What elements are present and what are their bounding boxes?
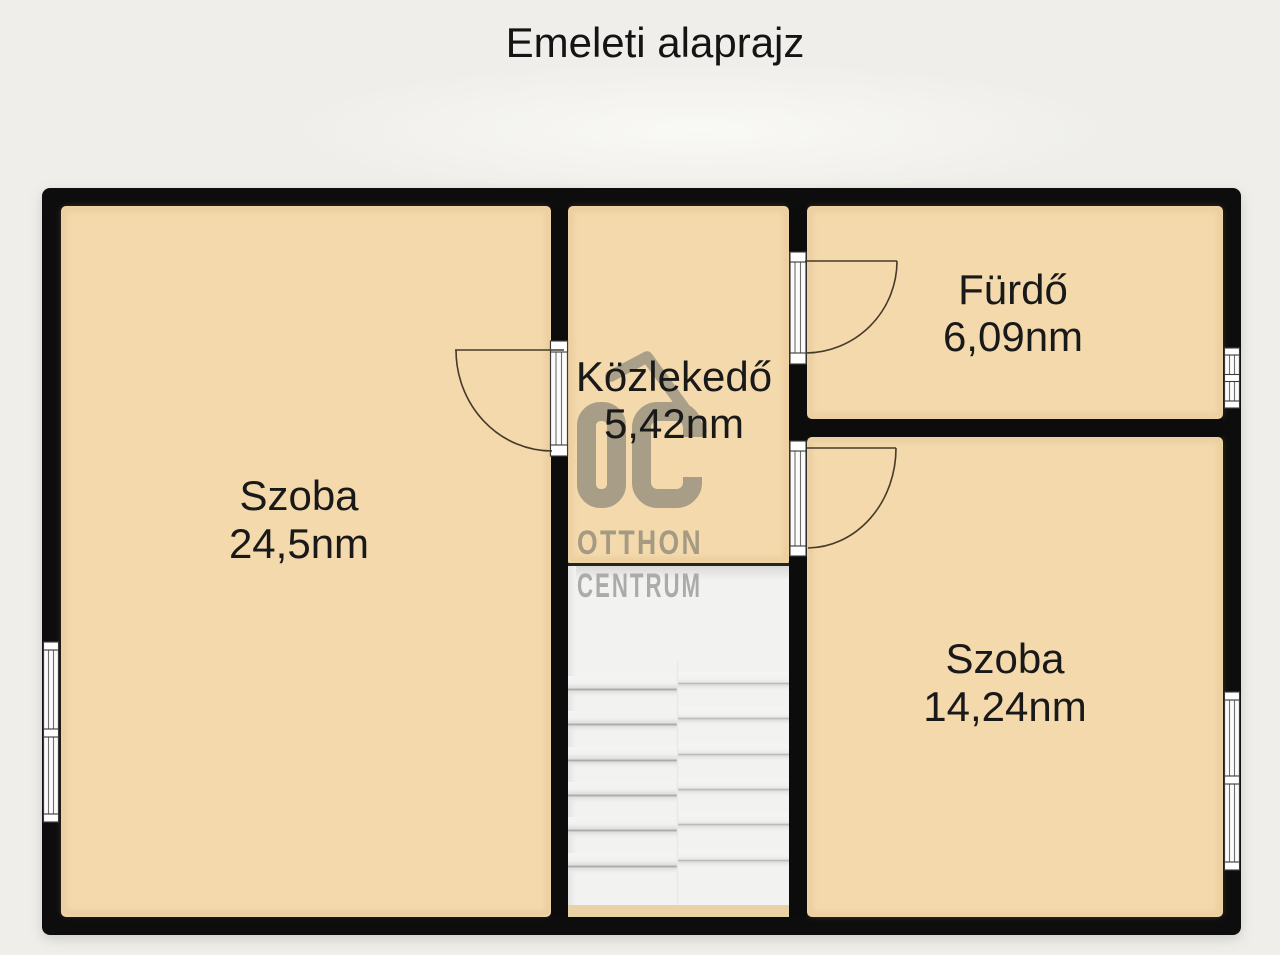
svg-text:6,09nm: 6,09nm [943, 313, 1083, 360]
svg-text:Szoba: Szoba [945, 635, 1065, 682]
svg-text:Fürdő: Fürdő [958, 266, 1068, 313]
svg-text:Közlekedő: Közlekedő [576, 353, 772, 400]
svg-text:CENTRUM: CENTRUM [577, 567, 702, 605]
svg-text:Emeleti alaprajz: Emeleti alaprajz [506, 19, 805, 66]
svg-text:24,5nm: 24,5nm [229, 520, 369, 567]
svg-text:OTTHON: OTTHON [577, 524, 703, 562]
svg-text:Szoba: Szoba [239, 472, 359, 519]
svg-text:14,24nm: 14,24nm [923, 683, 1086, 730]
svg-text:5,42nm: 5,42nm [604, 400, 744, 447]
